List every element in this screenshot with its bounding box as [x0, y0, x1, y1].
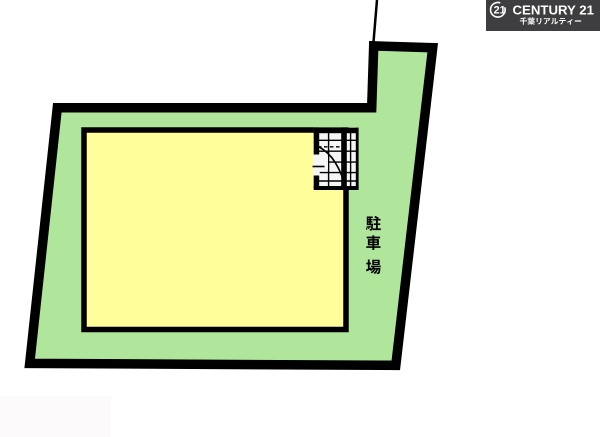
svg-text:21: 21 [494, 4, 506, 16]
svg-text:CENTURY 21: CENTURY 21 [513, 3, 595, 18]
